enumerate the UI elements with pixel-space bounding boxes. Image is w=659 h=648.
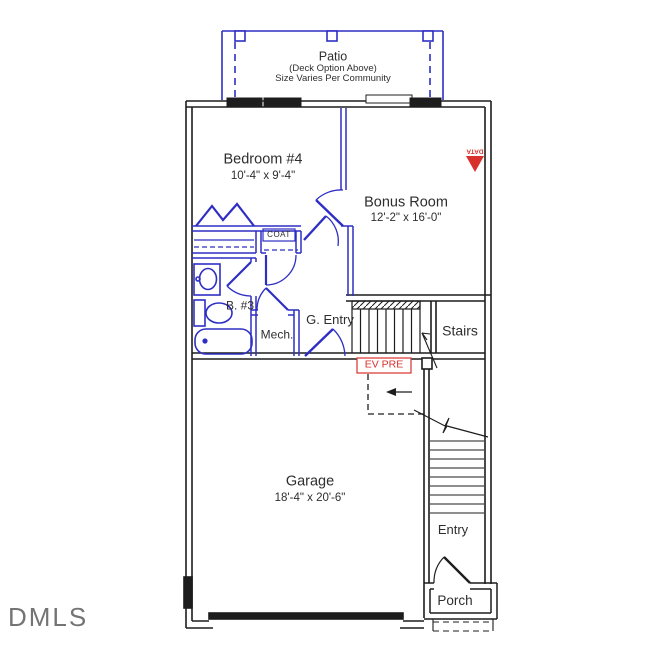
bonus-room-label: Bonus Room (364, 195, 448, 210)
garage-entry-label: G. Entry (306, 313, 354, 327)
entry-label: Entry (438, 523, 468, 537)
stairs-leader-arrow (422, 333, 437, 368)
bonus-room-dims: 12'-2" x 16'-0" (371, 212, 442, 224)
sink (194, 264, 220, 295)
porch-label: Porch (437, 594, 472, 608)
patio-label: Patio (319, 50, 348, 63)
coat-closet-label: COAT (267, 231, 291, 239)
stairs-label: Stairs (442, 324, 478, 339)
bath3-label: B. #3 (226, 300, 254, 313)
ev-pre-label: EV PRE (365, 359, 404, 370)
bedroom4-dims: 10'-4" x 9'-4" (231, 170, 295, 182)
floorplan-page: Patio (Deck Option Above) Size Varies Pe… (0, 0, 659, 648)
bathtub (195, 329, 252, 354)
data-port-icon (466, 156, 484, 172)
watermark: DMLS (8, 604, 88, 631)
lower-stairs (430, 441, 484, 513)
patio-note-2: Size Varies Per Community (275, 74, 390, 84)
data-port-label: DATA (466, 147, 483, 154)
mech-label: Mech. (261, 329, 294, 342)
stair-break-line (414, 410, 488, 437)
entry-door (434, 557, 470, 583)
bedroom4-label: Bedroom #4 (224, 152, 303, 167)
garage-dims: 18'-4" x 20'-6" (275, 492, 346, 504)
garage-label: Garage (286, 474, 334, 489)
upper-stairs (352, 301, 420, 353)
